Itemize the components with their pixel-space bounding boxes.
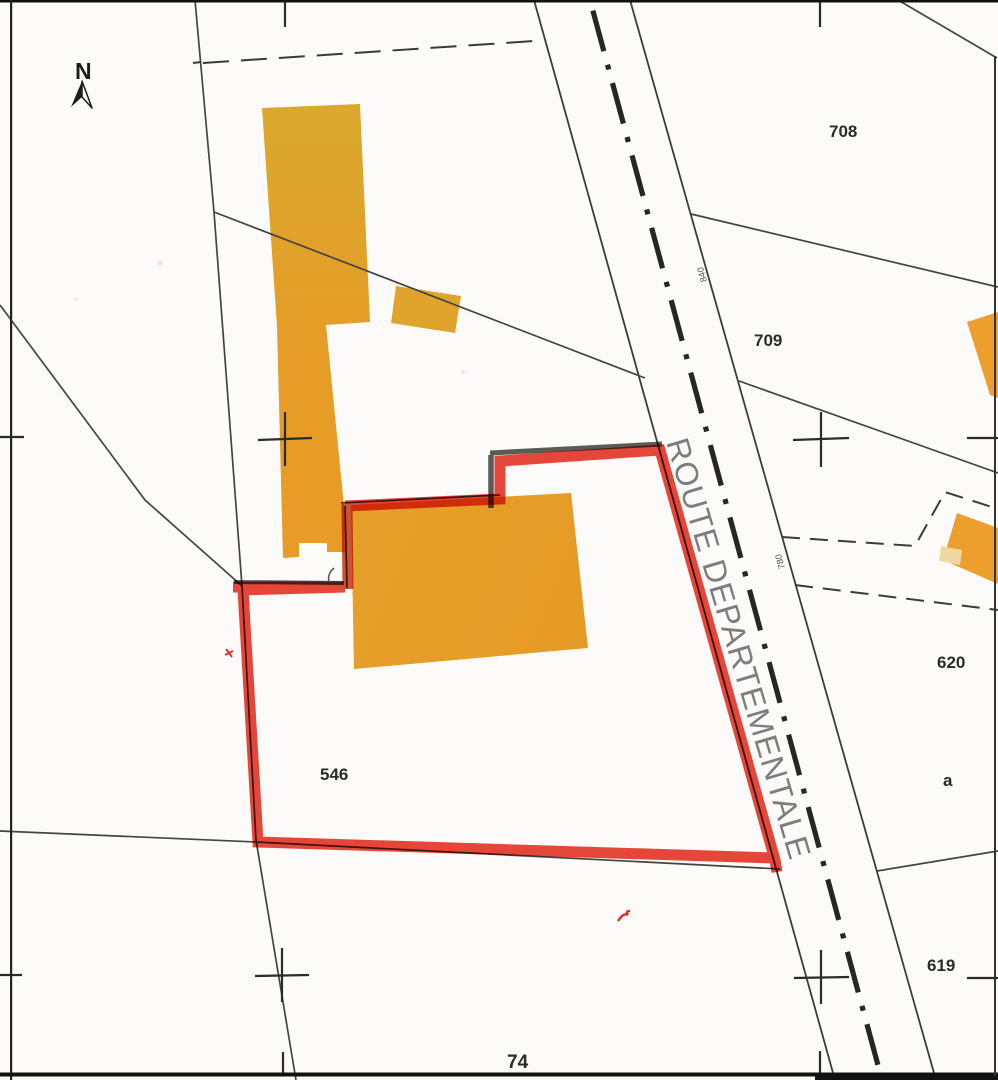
svg-text:74: 74 <box>507 1052 529 1073</box>
svg-text:619: 619 <box>927 956 955 975</box>
svg-text:620: 620 <box>937 653 965 672</box>
svg-text:709: 709 <box>754 331 782 350</box>
svg-text:N: N <box>75 58 92 84</box>
svg-text:708: 708 <box>829 122 857 141</box>
svg-text:a: a <box>943 771 953 790</box>
svg-text:546: 546 <box>320 765 348 784</box>
